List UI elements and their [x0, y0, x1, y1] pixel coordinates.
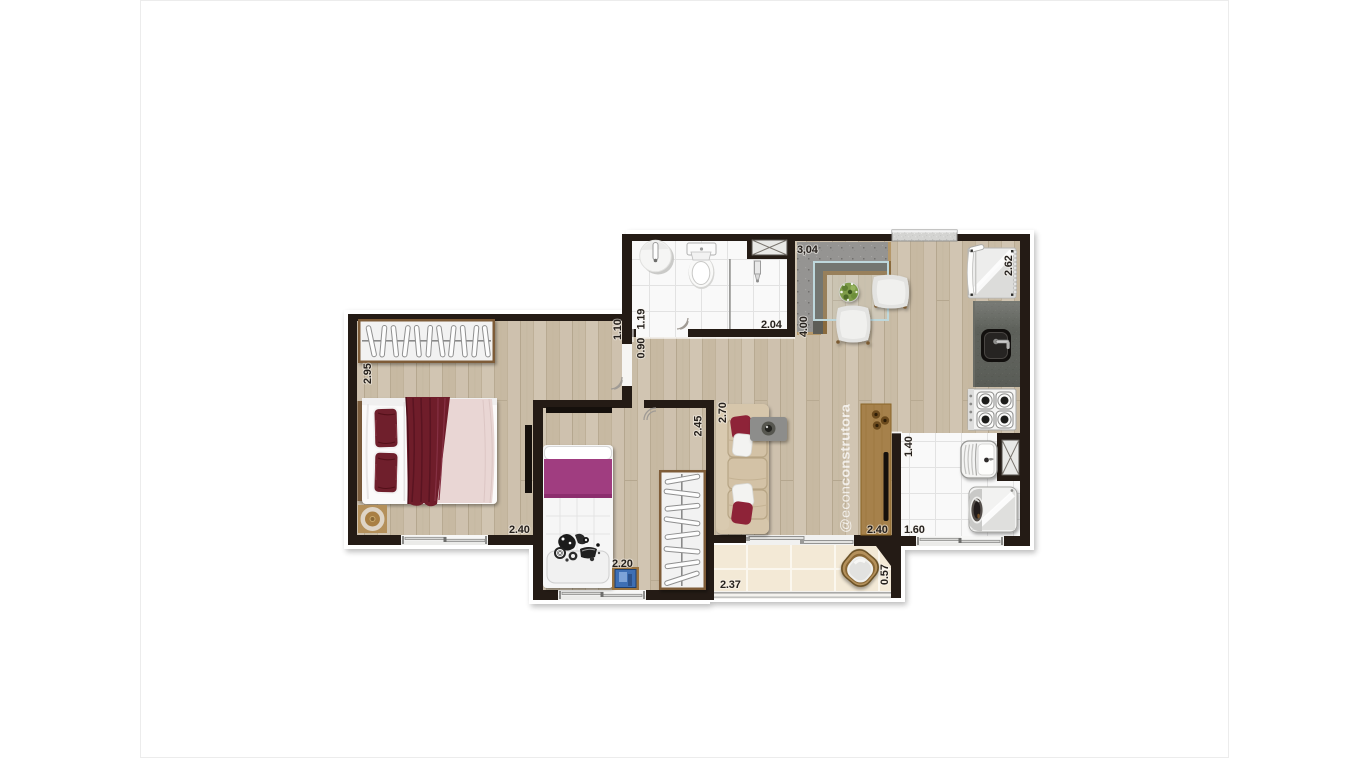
svg-text:3,04: 3,04	[797, 244, 819, 256]
svg-text:1.10: 1.10	[612, 319, 624, 340]
svg-text:2.62: 2.62	[1003, 255, 1015, 276]
svg-text:2.37: 2.37	[720, 579, 741, 591]
svg-text:2.45: 2.45	[693, 416, 705, 437]
svg-text:1.19: 1.19	[636, 309, 648, 330]
svg-text:@econconstrutora: @econconstrutora	[838, 403, 853, 533]
svg-text:1.40: 1.40	[903, 436, 915, 457]
svg-text:4.00: 4.00	[798, 316, 810, 337]
svg-text:2.04: 2.04	[761, 319, 783, 331]
svg-text:2.20: 2.20	[612, 558, 633, 570]
svg-text:0.57: 0.57	[879, 564, 891, 585]
svg-text:2.40: 2.40	[867, 524, 888, 536]
svg-text:1.60: 1.60	[904, 524, 925, 536]
svg-text:2.40: 2.40	[509, 524, 530, 536]
svg-text:2.95: 2.95	[362, 363, 374, 384]
svg-text:2.70: 2.70	[717, 402, 729, 423]
svg-text:0.90: 0.90	[636, 338, 648, 359]
